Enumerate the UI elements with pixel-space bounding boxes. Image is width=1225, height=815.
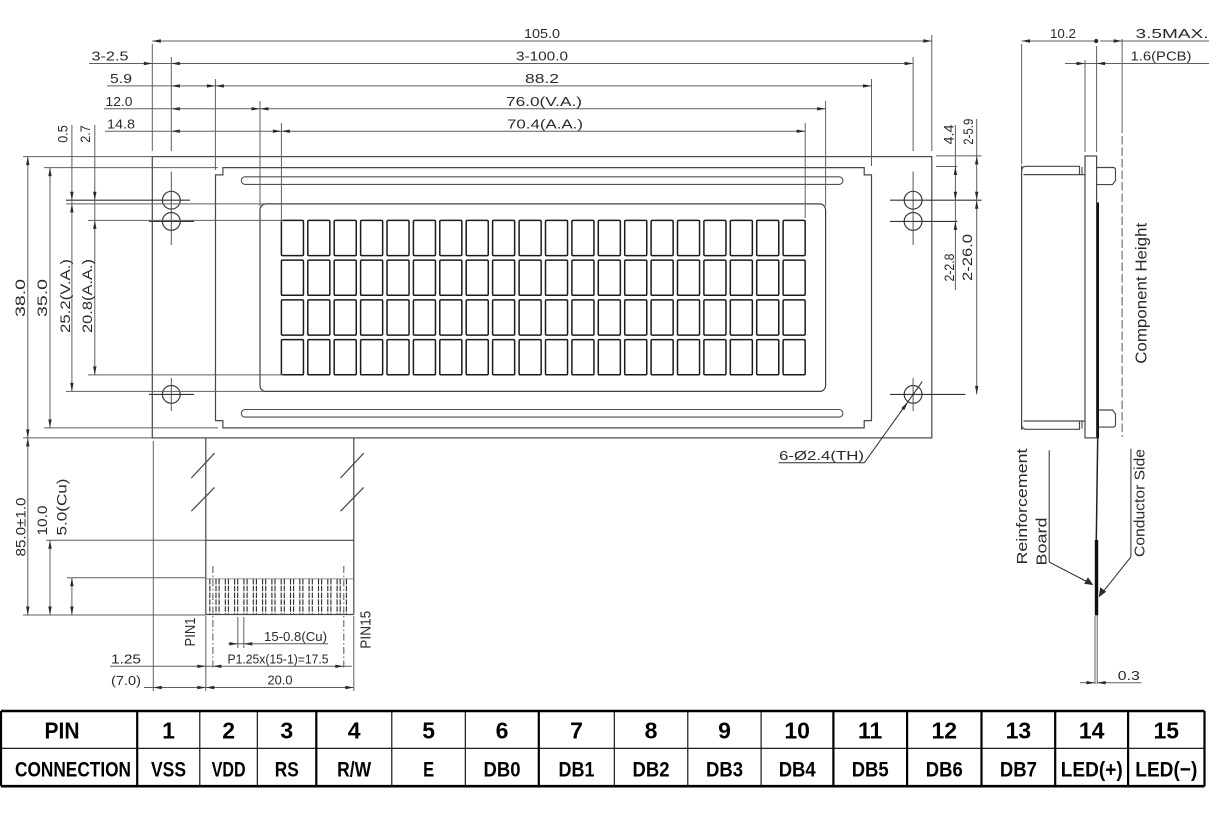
svg-text:38.0: 38.0 [12,279,28,317]
svg-text:88.2: 88.2 [525,72,559,86]
svg-text:14.8: 14.8 [107,117,135,131]
svg-text:2-5.9: 2-5.9 [960,119,976,145]
svg-text:8: 8 [645,718,658,744]
svg-text:3-2.5: 3-2.5 [92,50,129,64]
svg-text:PIN1: PIN1 [182,618,199,647]
svg-text:14: 14 [1079,718,1105,744]
svg-text:DB4: DB4 [779,758,816,782]
svg-text:105.0: 105.0 [524,27,560,41]
svg-text:DB5: DB5 [852,758,889,782]
svg-text:VSS: VSS [151,758,186,782]
svg-text:4.4: 4.4 [940,124,956,144]
svg-text:P1.25x(15-1)=17.5: P1.25x(15-1)=17.5 [228,653,329,667]
svg-text:Component Height: Component Height [1134,222,1151,364]
svg-text:DB3: DB3 [706,758,743,782]
svg-text:DB6: DB6 [926,758,963,782]
svg-text:15-0.8(Cu): 15-0.8(Cu) [264,630,327,644]
svg-text:3.5MAX.: 3.5MAX. [1136,27,1209,41]
svg-text:DB2: DB2 [633,758,670,782]
svg-text:35.0: 35.0 [34,279,50,317]
svg-text:9: 9 [718,718,731,744]
svg-text:CONNECTION: CONNECTION [15,758,131,782]
svg-text:25.2(V.A.): 25.2(V.A.) [57,259,73,333]
svg-text:13: 13 [1006,718,1032,744]
svg-text:Reinforcement: Reinforcement [1014,448,1031,565]
svg-text:2: 2 [222,718,235,744]
svg-text:R/W: R/W [337,758,372,782]
svg-text:1: 1 [162,718,175,744]
svg-text:20.0: 20.0 [268,674,293,688]
svg-text:DB1: DB1 [559,758,595,782]
svg-text:0.5: 0.5 [55,125,71,143]
svg-text:5: 5 [422,718,435,744]
svg-text:1.6(PCB): 1.6(PCB) [1131,50,1192,64]
svg-text:4: 4 [348,718,361,744]
svg-text:15: 15 [1154,718,1180,744]
svg-text:E: E [423,758,434,782]
svg-text:(7.0): (7.0) [111,674,141,688]
svg-text:PIN: PIN [45,718,80,744]
svg-text:12.0: 12.0 [106,95,133,109]
svg-text:LED(+): LED(+) [1061,758,1123,782]
svg-text:10: 10 [784,718,810,744]
svg-text:10.2: 10.2 [1050,27,1076,41]
svg-text:DB7: DB7 [1000,758,1037,782]
svg-text:76.0(V.A.): 76.0(V.A.) [506,95,582,109]
svg-text:7: 7 [570,718,583,744]
svg-text:85.0±1.0: 85.0±1.0 [12,497,28,556]
svg-text:VDD: VDD [212,758,246,782]
svg-text:5.9: 5.9 [110,72,132,86]
svg-text:1.25: 1.25 [111,653,141,667]
svg-text:Board: Board [1033,518,1050,566]
svg-text:20.8(A.A.): 20.8(A.A.) [79,259,95,333]
svg-text:2.7: 2.7 [77,125,93,143]
svg-text:3: 3 [280,718,293,744]
svg-text:PIN15: PIN15 [358,611,375,649]
svg-text:11: 11 [858,718,883,744]
svg-text:5.0(Cu): 5.0(Cu) [54,479,70,536]
svg-text:DB0: DB0 [484,758,521,782]
svg-text:6: 6 [496,718,509,744]
svg-text:RS: RS [275,758,299,782]
svg-text:LED(−): LED(−) [1135,758,1197,782]
svg-text:3-100.0: 3-100.0 [516,50,568,64]
svg-text:70.4(A.A.): 70.4(A.A.) [507,117,583,131]
svg-text:2-2.8: 2-2.8 [941,253,957,281]
svg-text:Conductor Side: Conductor Side [1132,449,1149,557]
svg-text:2-26.0: 2-26.0 [959,234,975,281]
svg-text:0.3: 0.3 [1118,669,1140,683]
svg-text:6-Ø2.4(TH): 6-Ø2.4(TH) [779,449,864,463]
svg-text:12: 12 [932,718,958,744]
svg-text:10.0: 10.0 [34,505,50,535]
